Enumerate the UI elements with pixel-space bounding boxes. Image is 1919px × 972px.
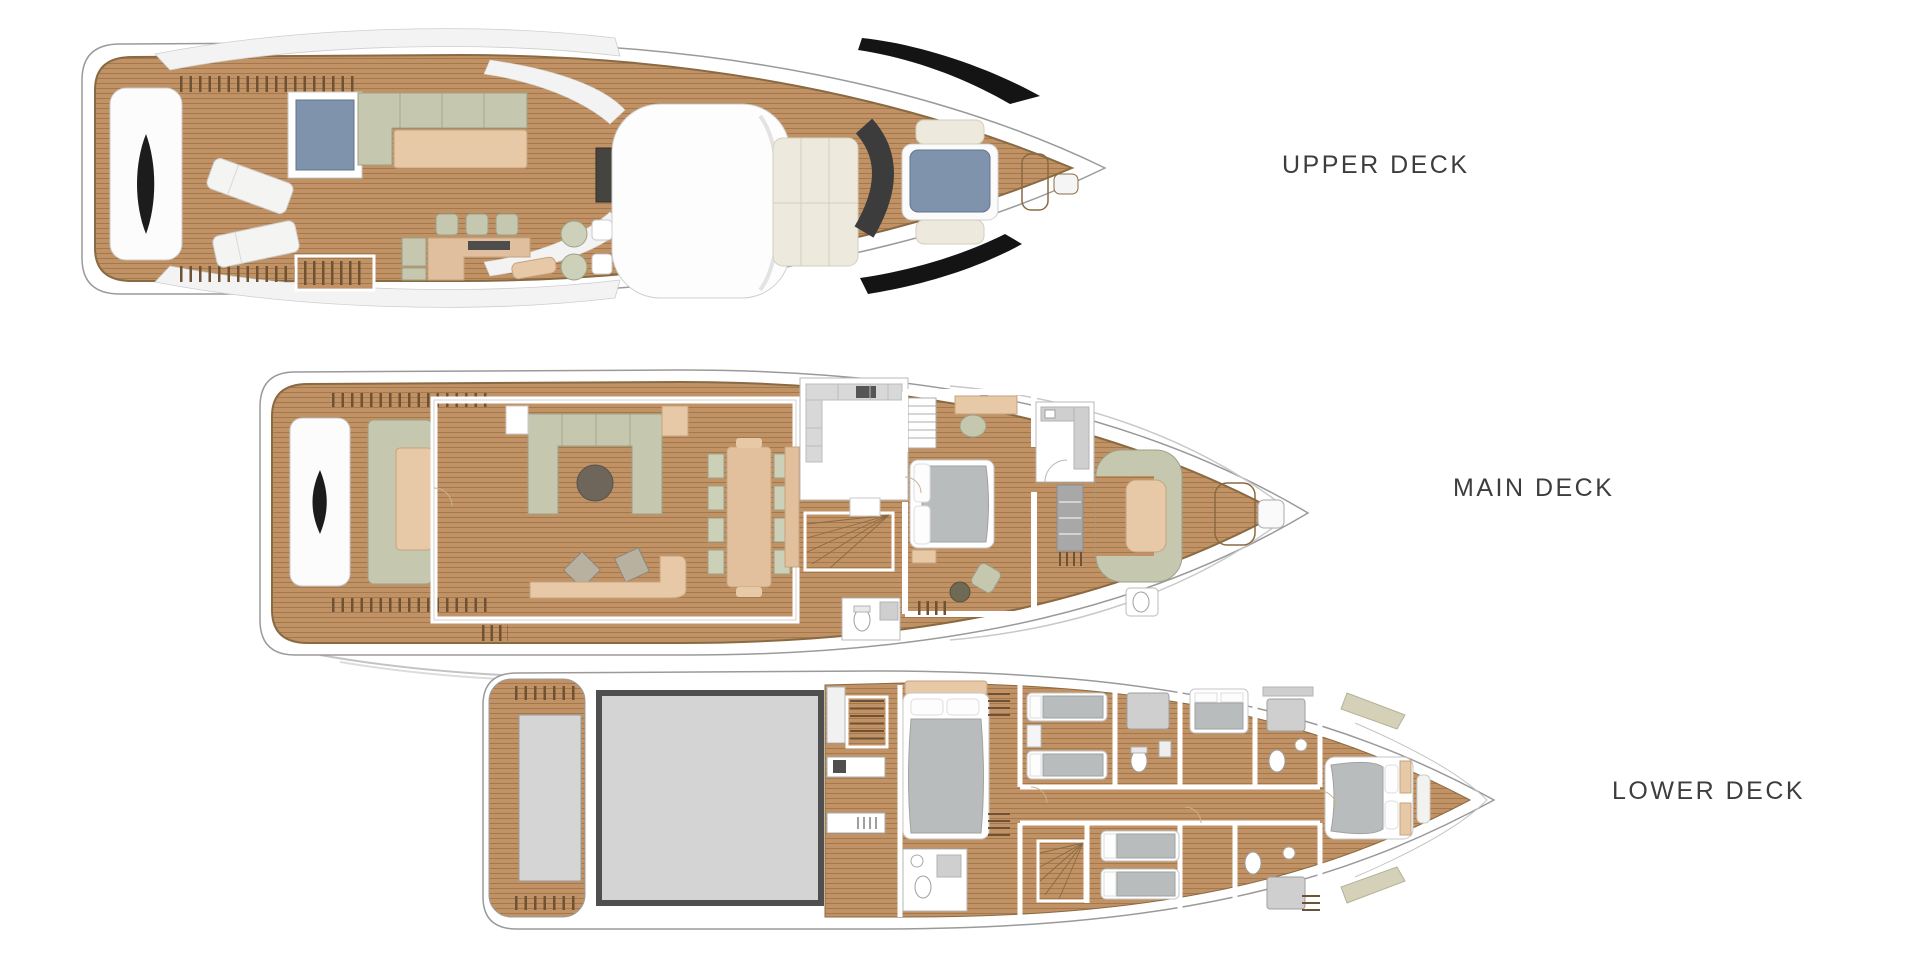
- aft-platform: [290, 418, 350, 586]
- bow-seat-pad-top: [916, 120, 984, 144]
- sideboard: [785, 447, 799, 567]
- single-bed-2: [1027, 751, 1107, 779]
- side-lamp-table: [950, 582, 970, 602]
- bow-sunpad: [902, 120, 998, 244]
- dining-area: [708, 438, 799, 597]
- vip-bed: [1325, 757, 1413, 839]
- single-bed-3: [1101, 831, 1179, 861]
- master-bed: [910, 460, 994, 563]
- single-bed-4: [1101, 869, 1179, 899]
- dining-table: [727, 447, 771, 587]
- bar-stool-2: [466, 214, 488, 235]
- upper-deck-label: UPPER DECK: [1282, 150, 1470, 180]
- vanity-desk: [955, 396, 1017, 414]
- bar-stool-3: [496, 214, 518, 235]
- helm-settee: [1096, 450, 1182, 582]
- side-table-2: [592, 254, 612, 274]
- aft-cabin-bed: [903, 693, 989, 839]
- fridge-units: [402, 238, 426, 266]
- crew-bunk: [827, 687, 845, 743]
- main-deck-label: MAIN DECK: [1453, 473, 1614, 503]
- coffee-table: [577, 465, 613, 501]
- powder-room: [842, 598, 900, 640]
- side-table-1: [592, 220, 612, 240]
- spa-pool: [288, 92, 362, 178]
- deck-plans-page: UPPER DECK MAIN DECK LOWER DECK: [0, 0, 1919, 972]
- foot-bench: [912, 550, 936, 563]
- bar-sink: [468, 241, 510, 250]
- vip-seat: [1417, 775, 1430, 823]
- lower-deck-label: LOWER DECK: [1612, 776, 1805, 806]
- main-deck-plan: [250, 352, 1325, 667]
- staircase: [1038, 841, 1085, 901]
- tender-hatch: [519, 715, 581, 881]
- day-head: [1036, 402, 1094, 482]
- bow-seat-pad-bottom: [916, 220, 984, 244]
- ensuite-bathroom: [903, 849, 967, 911]
- side-table: [506, 406, 528, 434]
- helm-table: [1126, 480, 1166, 552]
- upper-deck-plan: [60, 8, 1110, 320]
- sunpad: [394, 130, 527, 168]
- vanity-strip: [1263, 687, 1313, 696]
- pantry-shelves: [908, 398, 936, 448]
- single-bed-1: [1027, 693, 1107, 721]
- aft-platform: [110, 88, 182, 260]
- hardtop: [612, 104, 790, 298]
- foredeck-sunpads: [773, 138, 858, 266]
- crew-stairs: [847, 697, 887, 747]
- cabinet: [662, 406, 688, 436]
- swim-platform: [489, 679, 585, 917]
- nightstand: [1027, 725, 1041, 747]
- lower-deck-plan: [475, 663, 1505, 933]
- aft-sofa: [368, 420, 432, 584]
- galley: [800, 378, 908, 500]
- bow-console: [1258, 500, 1284, 528]
- helm-toilet: [1126, 588, 1158, 616]
- locker: [1057, 485, 1083, 551]
- vip-wardrobe-bottom: [1341, 867, 1405, 903]
- engine-room: [599, 693, 821, 903]
- vip-wardrobe-top: [1341, 693, 1405, 729]
- vanity-chair: [960, 415, 986, 437]
- bar-stool-1: [436, 214, 458, 235]
- deck-stairs: [296, 256, 374, 290]
